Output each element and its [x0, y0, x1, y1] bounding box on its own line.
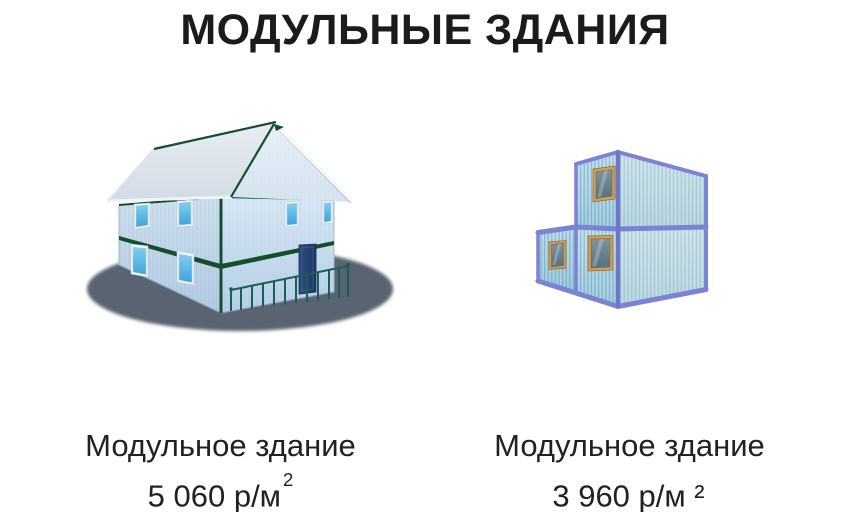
- captions-row: Модульное здание 5 060 р/м2 Модульное зд…: [0, 424, 850, 512]
- house-roof: [108, 122, 352, 203]
- product-caption-house: Модульное здание 5 060 р/м2: [8, 424, 433, 512]
- price-superscript: 2: [283, 469, 293, 490]
- page-title: МОДУЛЬНЫЕ ЗДАНИЯ: [0, 6, 850, 55]
- container-building-image: [525, 138, 720, 315]
- product-name: Модульное здание: [417, 424, 842, 467]
- product-price: 3 960 р/м ²: [417, 467, 842, 512]
- product-name: Модульное здание: [8, 424, 433, 467]
- product-price: 5 060 р/м2: [8, 467, 433, 512]
- modular-house-image: [60, 80, 400, 340]
- flyer-page: МОДУЛЬНЫЕ ЗДАНИЯ: [0, 0, 850, 512]
- product-caption-containers: Модульное здание 3 960 р/м ²: [417, 424, 842, 512]
